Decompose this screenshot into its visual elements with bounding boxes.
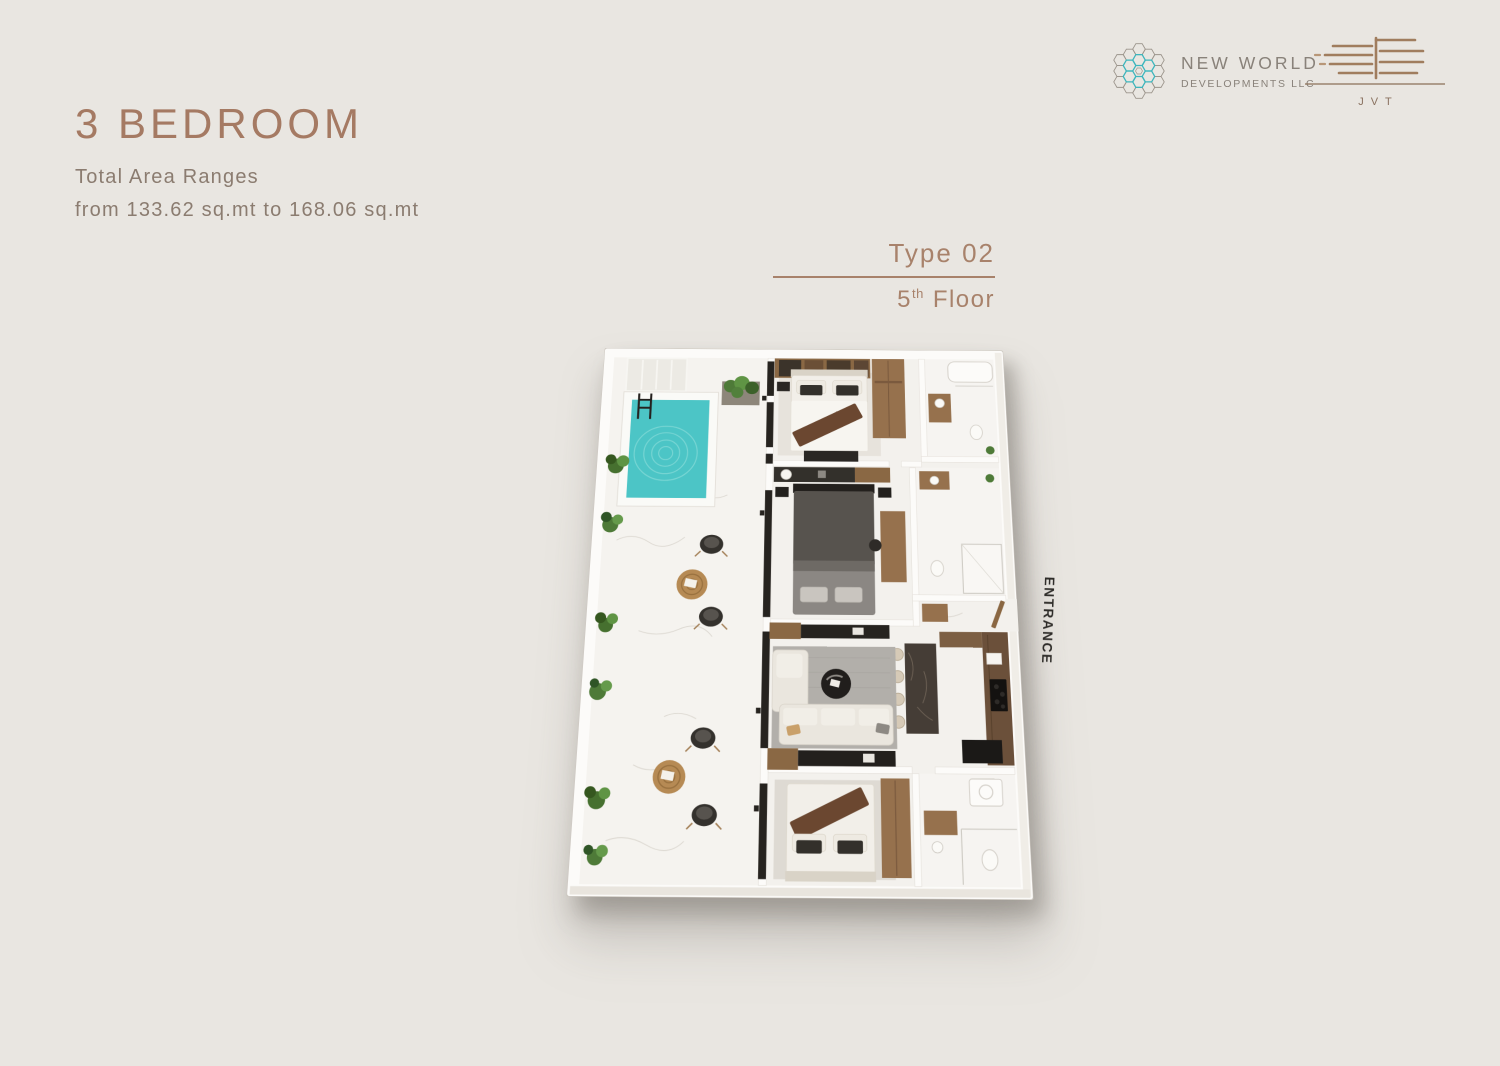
toilet <box>931 560 944 576</box>
floor-plan <box>566 348 1033 900</box>
dressing-vanity <box>774 467 891 483</box>
floor-ordinal: th <box>912 286 924 301</box>
nightstand <box>775 487 788 497</box>
bed-1 <box>790 369 869 451</box>
pool <box>617 392 719 507</box>
unit-floor-label: 5thFloor <box>773 286 995 314</box>
new-world-wordmark: NEW WORLD DEVELOPMENTS LLC <box>1181 53 1319 90</box>
jvt-building-icon <box>1303 34 1447 90</box>
bathtub <box>948 362 993 383</box>
kitchen-cabinet <box>939 632 982 648</box>
bed-2 <box>792 484 876 615</box>
cooktop <box>989 679 1007 711</box>
washer <box>969 779 1003 806</box>
new-world-subname: DEVELOPMENTS LLC <box>1181 78 1319 90</box>
console-table <box>922 604 948 622</box>
floor-plan-svg <box>566 348 1033 900</box>
toilet <box>970 425 983 440</box>
tv-bench <box>804 451 858 462</box>
nightstand <box>878 488 891 498</box>
new-world-logo: NEW WORLD DEVELOPMENTS LLC <box>1110 42 1319 100</box>
entrance-label: ENTRANCE <box>1039 576 1057 664</box>
floor-word: Floor <box>933 286 995 313</box>
floor-number: 5 <box>897 286 912 313</box>
kitchen-counter-dark <box>962 740 1003 764</box>
page-title: 3 BEDROOM <box>75 100 419 148</box>
bed-3 <box>785 784 876 882</box>
subtitle-line-1: Total Area Ranges <box>75 161 419 194</box>
kitchen-sink <box>986 653 1001 664</box>
brochure-page: 3 BEDROOM Total Area Ranges from 133.62 … <box>0 0 1500 1066</box>
toilet <box>982 850 999 871</box>
title-block: 3 BEDROOM Total Area Ranges from 133.62 … <box>75 100 419 227</box>
living-room <box>771 646 897 749</box>
jvt-label: JVT <box>1303 96 1447 108</box>
unit-type-label: Type 02 <box>773 238 995 269</box>
bedroom-3 <box>773 778 912 883</box>
desk <box>880 511 907 582</box>
nightstand <box>777 382 790 392</box>
subtitle-line-2: from 133.62 sq.mt to 168.06 sq.mt <box>75 194 419 227</box>
jvt-logo: JVT <box>1303 34 1447 108</box>
hexagon-flower-icon <box>1110 42 1168 100</box>
unit-info: Type 02 5thFloor <box>773 238 995 314</box>
unit-divider <box>773 276 995 278</box>
bath-cabinet <box>924 811 958 836</box>
new-world-name: NEW WORLD <box>1181 53 1319 74</box>
kitchen-island <box>904 643 938 733</box>
tv-console-2 <box>769 622 889 639</box>
bath-vanity <box>928 394 951 423</box>
